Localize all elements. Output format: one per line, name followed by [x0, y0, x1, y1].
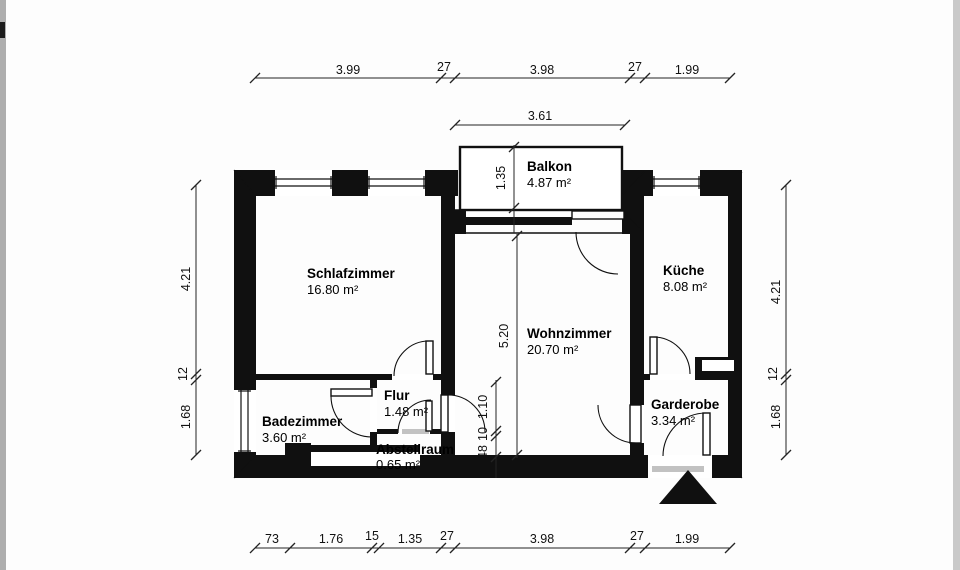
shaft-kueche-inset	[702, 360, 734, 371]
room-area-flur: 1.48 m²	[384, 404, 429, 419]
room-area-balkon: 4.87 m²	[527, 175, 572, 190]
dim-left-1: 4.21	[179, 267, 193, 291]
floor-plan-page: 3.99 27 3.98 27 1.99 3.61 1.35 4.21 12 1…	[0, 0, 960, 570]
dim-bottom-7: 27	[630, 529, 644, 543]
dim-interior-10: 10	[476, 427, 490, 441]
wall-wohnzimmer-right	[630, 196, 644, 380]
dim-left-3: 1.68	[179, 405, 193, 429]
niche-step	[285, 443, 311, 466]
room-name-badezimmer: Badezimmer	[262, 414, 343, 429]
window-badezimmer	[234, 390, 256, 452]
dim-top-3: 3.98	[530, 63, 554, 77]
door-badezimmer	[331, 389, 372, 437]
door-kueche	[650, 337, 690, 374]
dim-top-4: 27	[628, 60, 642, 74]
threshold-abstellraum	[402, 429, 429, 434]
dim-right-3: 1.68	[769, 405, 783, 429]
dim-bottom-6: 3.98	[530, 532, 554, 546]
dimension-lines: 3.99 27 3.98 27 1.99 3.61 1.35 4.21 12 1…	[176, 60, 791, 553]
dim-top-2: 27	[437, 60, 451, 74]
room-area-badezimmer: 3.60 m²	[262, 430, 307, 445]
room-name-garderobe: Garderobe	[651, 397, 720, 412]
room-area-kueche: 8.08 m²	[663, 279, 708, 294]
dim-interior-110: 1.10	[476, 395, 490, 419]
room-name-kueche: Küche	[663, 263, 705, 278]
room-name-schlafzimmer: Schlafzimmer	[307, 266, 396, 281]
dim-right-2: 12	[766, 367, 780, 381]
window-kueche	[653, 170, 700, 196]
threshold-entrance	[652, 466, 704, 472]
dim-bottom-5: 27	[440, 529, 454, 543]
door-garderobe	[598, 405, 641, 443]
dim-balcony-width: 3.61	[528, 109, 552, 123]
dim-interior-520: 5.20	[497, 324, 511, 348]
room-name-wohnzimmer: Wohnzimmer	[527, 326, 612, 341]
room-area-abstellraum: 0.65 m²	[376, 457, 421, 472]
room-area-wohnzimmer: 20.70 m²	[527, 342, 579, 357]
window-schlafzimmer-2	[368, 170, 425, 196]
door-schlafzimmer	[394, 341, 433, 376]
room-area-schlafzimmer: 16.80 m²	[307, 282, 359, 297]
room-name-abstellraum: Abstellraum	[376, 442, 454, 457]
window-schlafzimmer-1	[275, 170, 332, 196]
photo-edge-artifacts	[0, 0, 960, 570]
dim-balcony-depth: 1.35	[494, 166, 508, 190]
dim-interior-48: 48	[476, 445, 490, 459]
dim-bottom-3: 15	[365, 529, 379, 543]
opening-schlafzimmer-door	[392, 374, 433, 380]
dim-top-1: 3.99	[336, 63, 360, 77]
dim-bottom-4: 1.35	[398, 532, 422, 546]
wall-right	[728, 170, 742, 478]
door-balkon	[572, 211, 624, 274]
dim-left-2: 12	[176, 367, 190, 381]
room-name-balkon: Balkon	[527, 159, 572, 174]
wall-schlafzimmer-right	[441, 170, 455, 380]
dim-right-1: 4.21	[769, 280, 783, 304]
dim-top-5: 1.99	[675, 63, 699, 77]
dim-bottom-1: 73	[265, 532, 279, 546]
room-name-flur: Flur	[384, 388, 410, 403]
room-area-garderobe: 3.34 m²	[651, 413, 696, 428]
opening-kueche-door	[650, 374, 695, 380]
dim-bottom-8: 1.99	[675, 532, 699, 546]
dim-bottom-2: 1.76	[319, 532, 343, 546]
floor-plan-drawing: 3.99 27 3.98 27 1.99 3.61 1.35 4.21 12 1…	[0, 0, 960, 570]
